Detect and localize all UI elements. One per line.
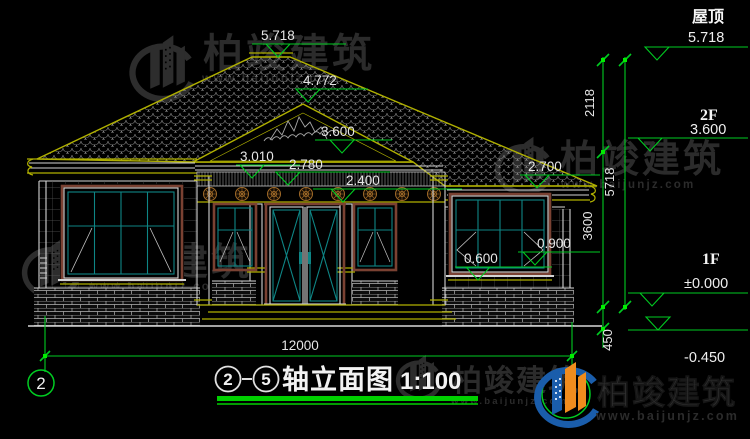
vdim-floor: 3600 (580, 212, 595, 241)
level-value: ±0.000 (684, 276, 728, 292)
dim-text: 0.600 (464, 251, 498, 266)
right-wing (442, 192, 574, 326)
door-handle-left (299, 252, 302, 264)
level-value: 5.718 (688, 30, 724, 46)
door-handle-right (308, 252, 311, 264)
vdim-roof: 2118 (582, 89, 597, 117)
dim-text: 2.700 (528, 159, 562, 174)
drawing-title: 轴立面图 (282, 364, 394, 395)
drawing-scale: 1:100 (400, 368, 461, 395)
title-underline-thick (217, 396, 478, 401)
left-parapet (212, 281, 256, 305)
dim-total-width: 12000 (281, 338, 319, 353)
cad-elevation-screenshot: 柏竣建筑 www.baijunjz.com 柏竣建筑 www.baijunjz.… (0, 0, 750, 439)
vdim-plinth: 450 (600, 329, 615, 351)
left-plinth (34, 288, 200, 326)
brand-company: 柏竣建筑 (597, 374, 737, 411)
axis-number: 2 (36, 374, 45, 393)
title-axis-end: 5 (261, 370, 270, 389)
left-wing (34, 181, 200, 326)
level-label: 1F (702, 251, 720, 268)
level-value: -0.450 (684, 350, 725, 366)
vdim-total: 5718 (602, 168, 617, 197)
dim-text: 2.780 (289, 157, 323, 172)
right-parapet (352, 281, 398, 305)
dim-text: 4.772 (303, 73, 337, 88)
brand-website: www.baijunjz.com (595, 409, 739, 423)
dim-text: 3.010 (240, 149, 274, 164)
dim-text: 3.600 (321, 124, 355, 139)
level-value: 3.600 (690, 122, 726, 138)
dim-text: 2.400 (346, 173, 380, 188)
level-label: 屋顶 (692, 8, 724, 26)
dim-text: 5.718 (261, 28, 295, 43)
title-axis-start: 2 (223, 370, 232, 389)
elevation-canvas: 柏竣建筑 www.baijunjz.com 柏竣建筑 www.baijunjz.… (0, 0, 750, 439)
dim-text: 0.900 (537, 236, 571, 251)
right-plinth (442, 288, 574, 326)
